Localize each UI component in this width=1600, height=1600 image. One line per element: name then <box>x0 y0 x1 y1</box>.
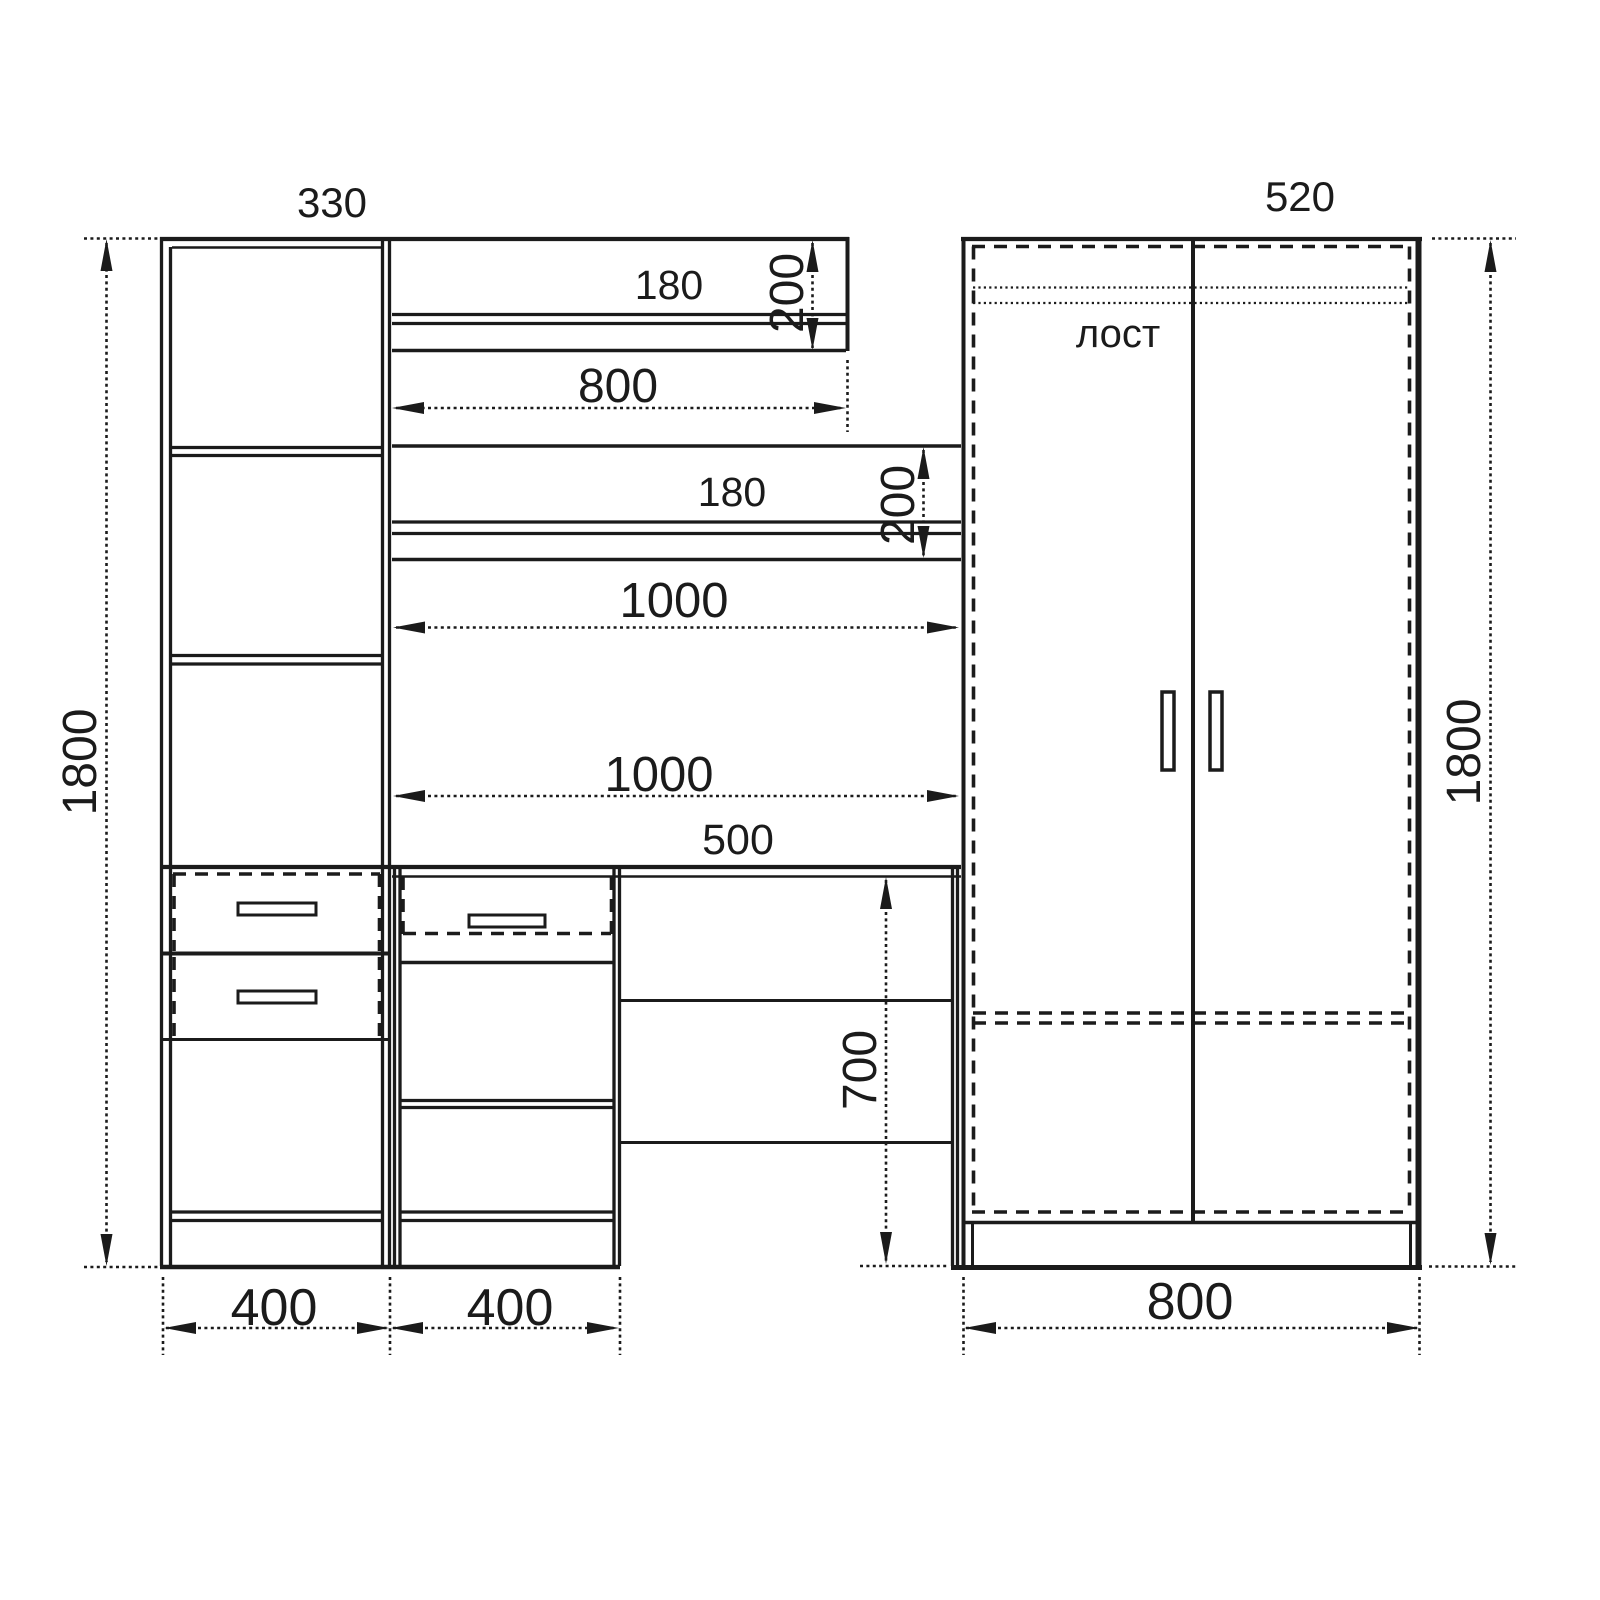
svg-text:200: 200 <box>872 465 925 545</box>
svg-text:700: 700 <box>834 1030 887 1110</box>
svg-text:400: 400 <box>231 1279 318 1337</box>
svg-text:520: 520 <box>1265 173 1335 220</box>
svg-text:200: 200 <box>761 253 814 333</box>
svg-text:1000: 1000 <box>604 748 713 802</box>
svg-text:1800: 1800 <box>1438 699 1491 806</box>
svg-text:330: 330 <box>297 179 367 226</box>
svg-text:1000: 1000 <box>619 574 728 628</box>
svg-text:500: 500 <box>702 816 774 864</box>
svg-text:лост: лост <box>1076 312 1160 356</box>
svg-text:800: 800 <box>1147 1273 1234 1331</box>
svg-text:180: 180 <box>635 262 703 308</box>
svg-text:400: 400 <box>467 1279 554 1337</box>
svg-text:1800: 1800 <box>54 709 107 816</box>
svg-text:800: 800 <box>578 360 658 413</box>
svg-text:180: 180 <box>698 469 766 515</box>
